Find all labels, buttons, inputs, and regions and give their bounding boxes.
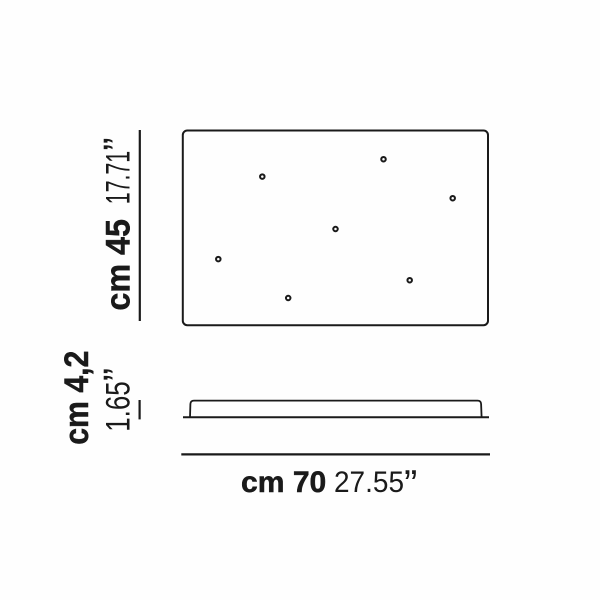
svg-text:1.65”: 1.65”	[96, 368, 140, 432]
svg-text:cm 4517.71”: cm 4517.71”	[96, 137, 140, 310]
svg-text:cm 4,2: cm 4,2	[58, 351, 96, 445]
svg-text:cm 7027.55”: cm 7027.55”	[241, 463, 417, 507]
